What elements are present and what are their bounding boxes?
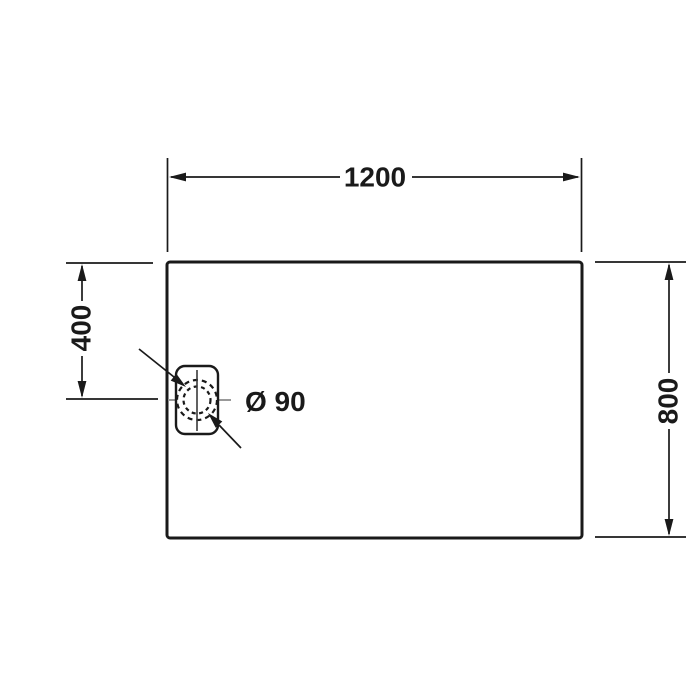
technical-drawing: 1200 400 800 <box>0 0 700 700</box>
arrowhead-down-icon <box>665 519 674 536</box>
dim-label-height: 800 <box>653 378 684 425</box>
drawing-canvas: 1200 400 800 <box>0 0 700 700</box>
dim-label-width: 1200 <box>344 162 406 193</box>
arrowhead-left-icon <box>169 173 186 182</box>
dim-drain-offset: 400 <box>66 263 159 399</box>
arrowhead-down-icon <box>78 381 87 398</box>
arrowhead-up-icon <box>78 264 87 281</box>
dim-label-drain-diameter: Ø 90 <box>245 386 306 417</box>
dim-label-drain-offset: 400 <box>66 305 97 352</box>
arrowhead-up-icon <box>665 263 674 280</box>
dim-height: 800 <box>595 262 686 537</box>
dim-width: 1200 <box>168 158 582 252</box>
arrowhead-right-icon <box>563 173 580 182</box>
